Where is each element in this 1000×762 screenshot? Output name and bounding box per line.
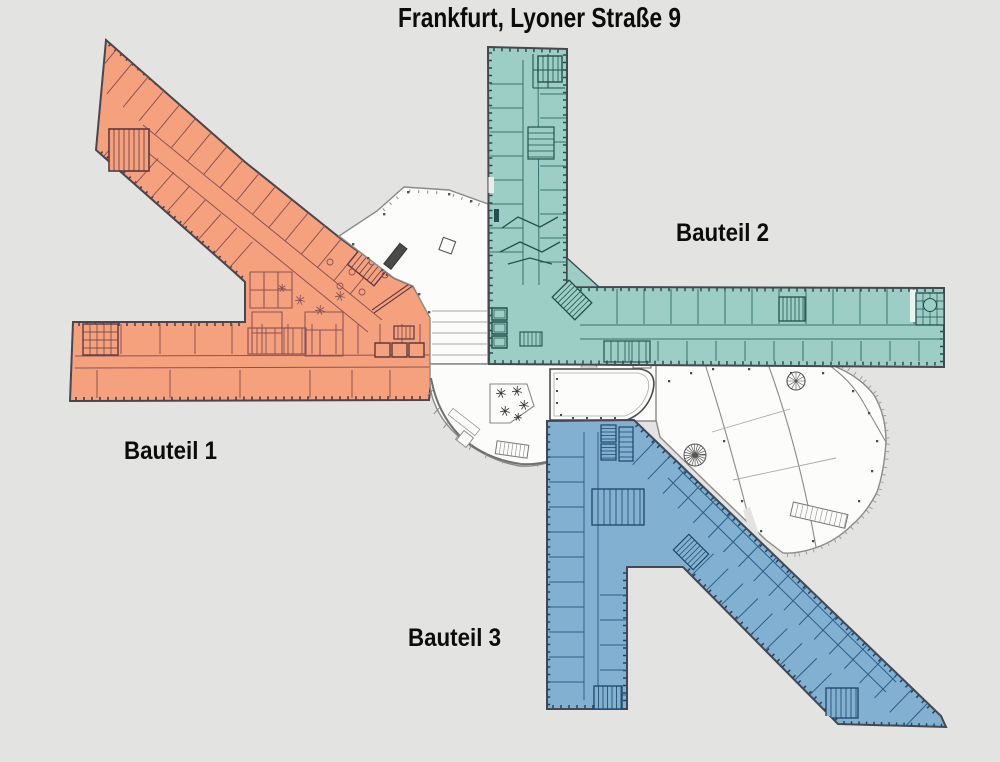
svg-text:Bauteil 3: Bauteil 3 <box>408 624 501 652</box>
svg-text:Bauteil 1: Bauteil 1 <box>124 437 217 465</box>
svg-text:Frankfurt, Lyoner Straße 9: Frankfurt, Lyoner Straße 9 <box>398 2 681 33</box>
svg-text:Bauteil 2: Bauteil 2 <box>676 219 769 247</box>
